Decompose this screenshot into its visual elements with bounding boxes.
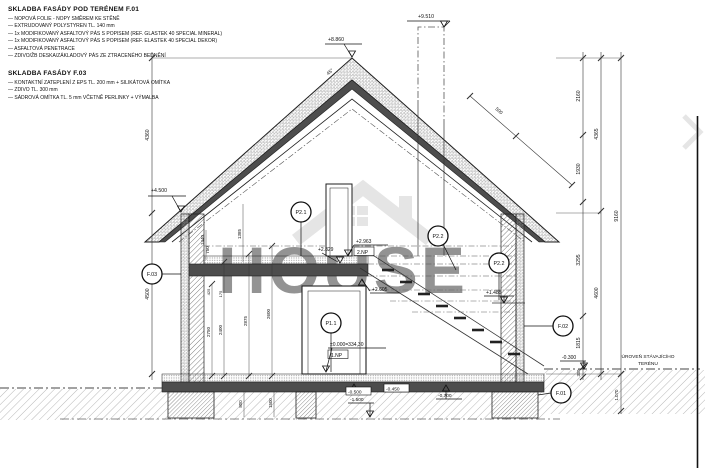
dim-right-inner-0: 2160	[576, 90, 582, 101]
dim-interior-top-1: 175	[218, 290, 223, 297]
dim-left-lower: 4500	[145, 288, 151, 299]
dim-attic-2: 1385	[237, 228, 242, 239]
dim-interior-3: 2600	[266, 308, 271, 319]
dim-interior-2: 2875	[243, 315, 248, 326]
level-eave-label: +4.500	[151, 188, 167, 194]
dim-right-outer-below: 1.070	[614, 389, 619, 401]
level-foundation-step-label: -0.500	[348, 390, 362, 396]
dim-interior-1: 2400	[218, 324, 223, 335]
dim-right-mid-1: 4600	[594, 287, 600, 298]
marker-f03-label: F.03	[147, 272, 157, 278]
level-floor1-tag: 1.NP	[331, 353, 343, 359]
door-upper-floor	[326, 184, 352, 256]
marker-f01-label: F.01	[556, 391, 566, 397]
dim-left-upper: 4360	[145, 129, 151, 140]
level-chimney-top-label: +9.510	[418, 14, 434, 20]
dim-right-inner-3: 1815	[576, 337, 582, 348]
level-terrain-label: -0.300	[562, 355, 576, 361]
level-slab-bottom-label: -0.450	[386, 387, 400, 393]
dim-right-mid-0: 4365	[594, 128, 600, 139]
level-floor2-tag: 2.NP	[357, 250, 369, 256]
marker-p11-label: P1.1	[325, 321, 336, 327]
level-slab-bottom: -0.450	[384, 384, 409, 393]
terrain-annotation-line1: ÚROVEŇ STÁVAJÍCÍHO	[622, 353, 675, 360]
section-drawing: HOUSE	[0, 0, 705, 468]
terrain-annotation: ÚROVEŇ STÁVAJÍCÍHO TERÉNU	[622, 353, 675, 367]
level-chimney-top: +9.510	[407, 14, 450, 27]
dim-roof-slope: 500	[494, 106, 504, 116]
dim-foundation-1: 1500	[268, 398, 273, 408]
dim-right-inner-1: 1930	[576, 163, 582, 174]
level-ceiling1-label: +2.829	[318, 247, 334, 253]
dim-attic-1: 750	[205, 246, 210, 254]
level-footing-label: -0.700	[438, 393, 452, 399]
level-ridge-label: +8.860	[328, 37, 344, 43]
marker-p22-b-label: P2.2	[493, 261, 504, 267]
level-foundation-bottom-label: -1.500	[350, 397, 364, 403]
dim-interior-0: 2750	[206, 326, 211, 337]
level-eave: +4.500	[148, 188, 186, 212]
level-slab2-bottom-label: +2.605	[372, 287, 388, 293]
dim-attic-0: 1440	[200, 234, 205, 245]
dim-foundation-0: 800	[238, 400, 243, 408]
level-floor2-label: +2.963	[356, 239, 372, 245]
marker-p21-label: P2.1	[295, 210, 306, 216]
level-ridge: +8.860	[325, 37, 362, 57]
marker-f02: F.02	[524, 316, 573, 336]
dim-interior-top-0: 425	[206, 288, 211, 295]
dim-right-outer-total: 9160	[614, 210, 620, 221]
marker-p22-a-label: P2.2	[432, 234, 443, 240]
dim-right-inner-4: 300	[576, 369, 581, 377]
architectural-section-sheet: SKLADBA FASÁDY POD TERÉNEM F.01 — NOPOVÁ…	[0, 0, 705, 468]
level-floor1-label: ±0.000=334,30	[330, 342, 364, 348]
marker-f02-label: F.02	[558, 324, 568, 330]
terrain-annotation-line2: TERÉNU	[638, 360, 658, 367]
marker-f03: F.03	[142, 264, 181, 284]
dim-right-inner-2: 3295	[576, 254, 582, 265]
